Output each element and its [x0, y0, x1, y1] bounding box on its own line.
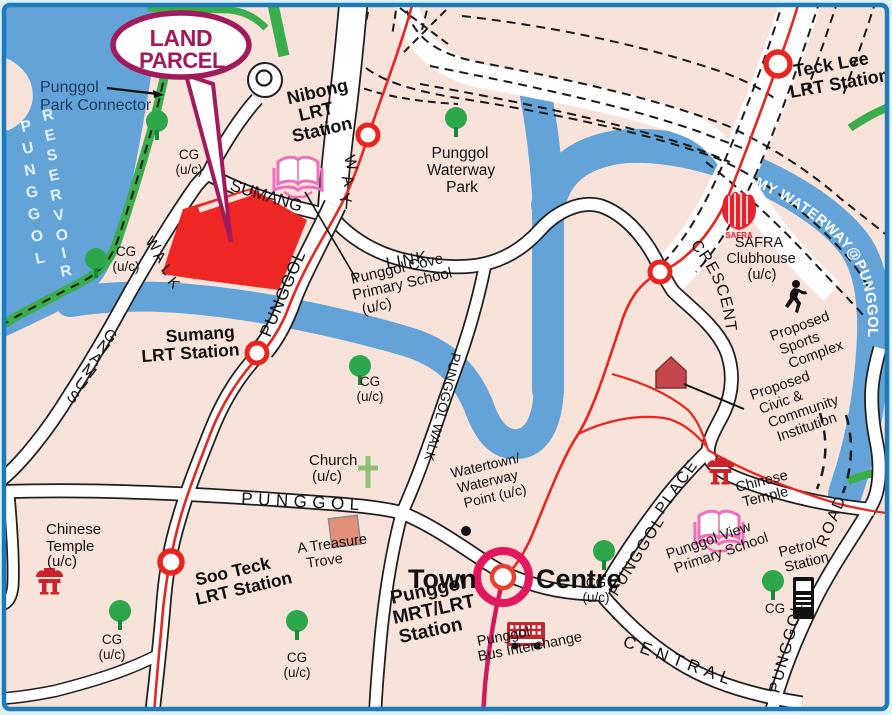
svg-text:CG: CG: [360, 374, 380, 389]
svg-text:Punggol: Punggol: [432, 145, 489, 162]
svg-text:(u/c): (u/c): [357, 389, 384, 404]
svg-text:PARCEL: PARCEL: [139, 48, 225, 73]
svg-text:(u/c): (u/c): [284, 665, 311, 680]
svg-text:SAFRA: SAFRA: [735, 235, 784, 251]
svg-text:Waterway: Waterway: [427, 162, 496, 179]
svg-text:Chinese: Chinese: [46, 521, 101, 538]
svg-text:Clubhouse: Clubhouse: [726, 251, 795, 267]
svg-text:CG: CG: [586, 575, 606, 590]
svg-text:(u/c): (u/c): [47, 553, 77, 570]
svg-text:(u/c): (u/c): [113, 259, 140, 274]
svg-text:CG: CG: [116, 244, 136, 259]
svg-text:Park Connector: Park Connector: [40, 97, 152, 114]
svg-text:(u/c): (u/c): [583, 590, 610, 605]
svg-text:CG: CG: [765, 601, 785, 616]
svg-text:Punggol: Punggol: [40, 79, 99, 96]
svg-text:(u/c): (u/c): [748, 267, 777, 283]
svg-text:CG: CG: [102, 632, 122, 647]
svg-text:(u/c): (u/c): [99, 647, 126, 662]
svg-text:CG: CG: [287, 650, 307, 665]
svg-text:(u/c): (u/c): [312, 468, 342, 485]
svg-text:Church: Church: [309, 452, 357, 469]
svg-text:(u/c): (u/c): [176, 162, 203, 177]
svg-text:Park: Park: [446, 179, 478, 196]
svg-text:CG: CG: [179, 147, 199, 162]
